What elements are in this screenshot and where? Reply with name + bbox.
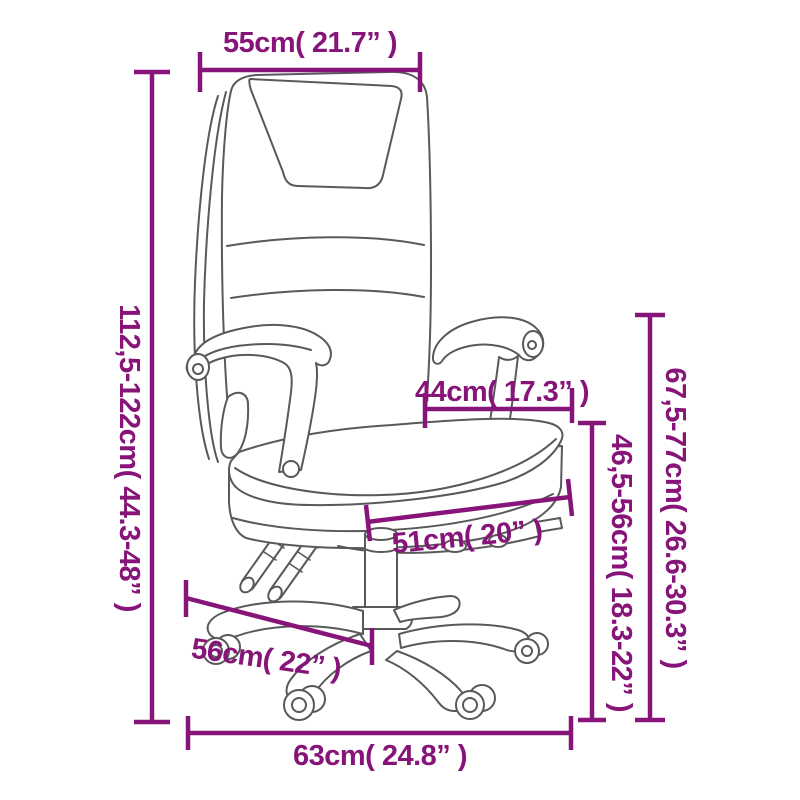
dimension-top-width-label: 55cm( 21.7” ) — [223, 27, 397, 59]
base-leg-left — [208, 601, 363, 639]
armrest-right-endcap — [523, 331, 543, 357]
diagram-canvas: 55cm( 21.7” ) 112,5-122cm( 44.3-48” ) 44… — [0, 0, 800, 800]
armrest-left-bolt — [283, 461, 299, 477]
base-leg-back — [394, 596, 460, 622]
dimension-armrest-floor-height: 67,5-77cm( 26.6-30.3” ) — [635, 315, 691, 720]
dimension-seat-floor-height-label: 46,5-56cm( 18.3-22” ) — [605, 434, 637, 712]
product-dimension-diagram: 55cm( 21.7” ) 112,5-122cm( 44.3-48” ) 44… — [0, 0, 800, 800]
dimension-seat-floor-height-line — [578, 423, 606, 720]
dimension-seat-floor-height: 46,5-56cm( 18.3-22” ) — [578, 423, 637, 720]
dimension-base-width: 63cm( 24.8” ) — [188, 716, 571, 772]
armrest-left-endcap — [187, 354, 209, 380]
dimension-total-height: 112,5-122cm( 44.3-48” ) — [113, 72, 170, 722]
caster-front-right-wheel — [456, 691, 484, 719]
dimension-armrest-floor-height-label: 67,5-77cm( 26.6-30.3” ) — [659, 367, 691, 668]
base-leg-front-right — [386, 651, 466, 711]
dimension-total-height-label: 112,5-122cm( 44.3-48” ) — [113, 304, 145, 612]
dimension-base-diagonal-label: 56cm( 22” ) — [189, 633, 343, 686]
dimension-armrest-span-label: 44cm( 17.3” ) — [415, 376, 589, 408]
caster-front-left-wheel — [284, 690, 314, 720]
caster-right-wheel — [515, 639, 539, 663]
dimension-base-width-label: 63cm( 24.8” ) — [293, 740, 467, 772]
caster-front-right — [456, 685, 495, 719]
base-leg-right — [399, 624, 530, 651]
